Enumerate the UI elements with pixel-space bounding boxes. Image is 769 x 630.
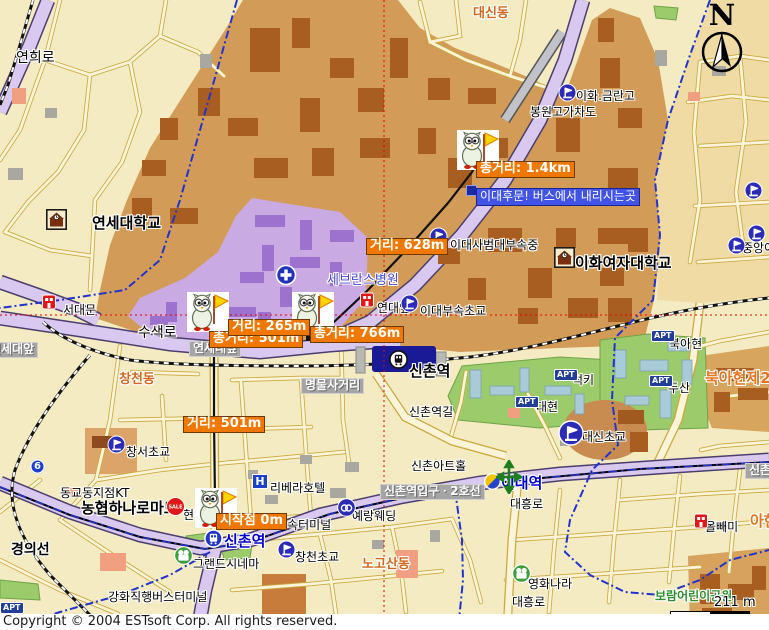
scale-text: 211 m (714, 595, 756, 610)
compass-needle-icon (699, 30, 745, 74)
copyright-bar: Copyright © 2004 ESTsoft Corp. All right… (0, 614, 769, 630)
map-art (0, 0, 769, 630)
compass-north-label: N (699, 0, 745, 30)
map-canvas[interactable]: 연희로대신동이화.금란고봉원고가차도연세대학교세브란스병원이대사범대부속중이화여… (0, 0, 769, 630)
sinchon-station-box (372, 346, 436, 372)
compass: N (699, 0, 745, 78)
